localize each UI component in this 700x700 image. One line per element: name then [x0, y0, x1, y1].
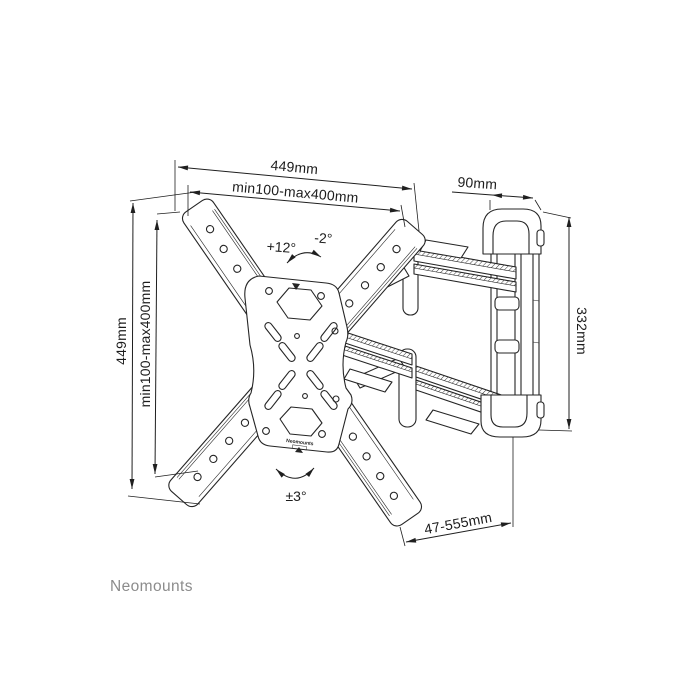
- dim-top-width-label: 449mm: [270, 157, 319, 177]
- wall-plate-bottom-cap: [481, 395, 544, 437]
- level-angle-label: ±3°: [285, 488, 306, 504]
- dim-wall-width-label: 90mm: [457, 174, 498, 193]
- tilt-up-label: +12°: [266, 238, 296, 256]
- wall-mount-arm: [342, 209, 544, 437]
- level-angle-arc: [276, 468, 314, 478]
- dim-left-height-label: 449mm: [113, 317, 129, 365]
- clamp-tab: [426, 410, 479, 434]
- dim-left-vesa-label: min100-max400mm: [137, 281, 153, 408]
- vesa-plate: Neomounts: [245, 276, 352, 453]
- wall-plate-top-cap: [483, 209, 544, 254]
- dim-line-wall-width: [492, 195, 533, 198]
- dim-line-left-vesa: [155, 220, 157, 474]
- tilt-down-label: -2°: [314, 229, 333, 246]
- product-drawing-page: Neomounts 449mm min100-max4: [0, 0, 700, 700]
- dim-line-left-height: [132, 203, 133, 489]
- brand-logo: Neomounts: [110, 578, 193, 595]
- dim-wall-height-label: 332mm: [574, 307, 590, 355]
- product-technical-drawing: Neomounts 449mm min100-max4: [0, 0, 700, 700]
